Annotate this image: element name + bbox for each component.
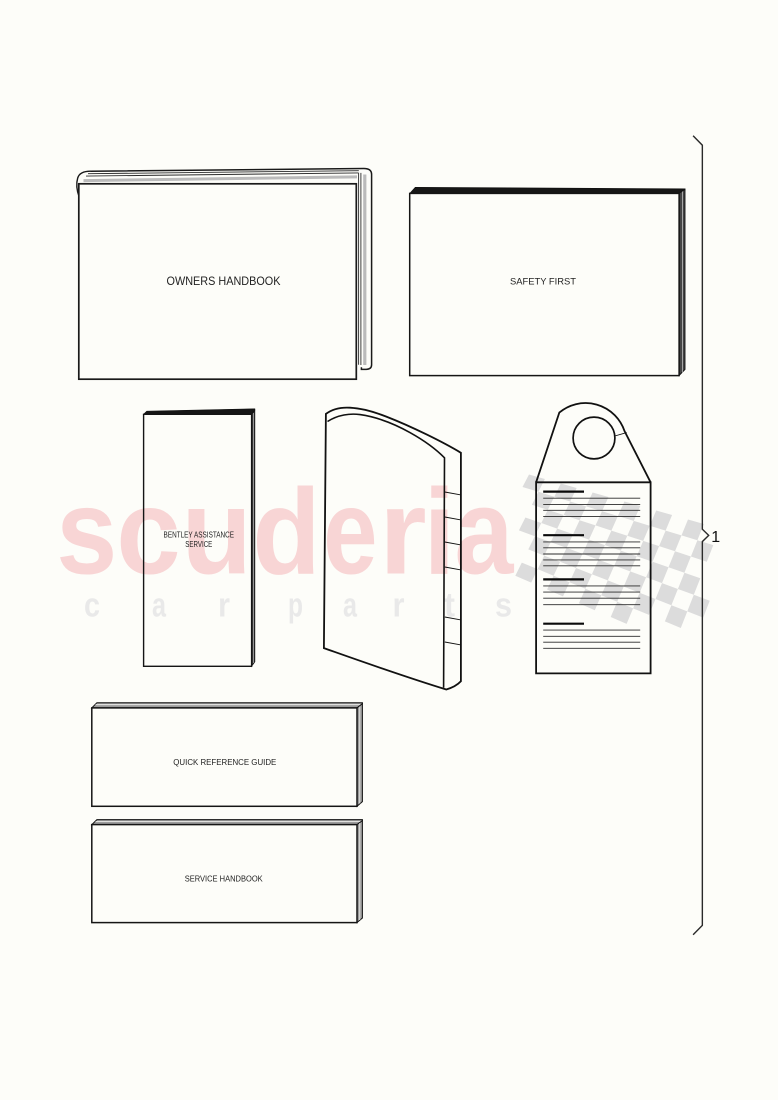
svg-text:OWNERS HANDBOOK: OWNERS HANDBOOK (167, 274, 281, 288)
svg-text:e: e (323, 464, 377, 600)
svg-text:a: a (343, 587, 358, 625)
svg-text:BENTLEY ASSISTANCE: BENTLEY ASSISTANCE (164, 531, 235, 540)
svg-text:QUICK REFERENCE GUIDE: QUICK REFERENCE GUIDE (173, 758, 276, 767)
svg-text:d: d (252, 464, 320, 600)
svg-text:SAFETY FIRST: SAFETY FIRST (510, 276, 576, 287)
svg-text:s: s (495, 587, 512, 625)
svg-text:a: a (152, 587, 167, 625)
svg-text:a: a (455, 464, 515, 600)
svg-text:1: 1 (711, 529, 720, 546)
svg-text:p: p (288, 587, 303, 625)
svg-text:s: s (56, 464, 117, 600)
svg-text:r: r (393, 587, 405, 625)
svg-text:SERVICE HANDBOOK: SERVICE HANDBOOK (185, 875, 264, 884)
svg-text:c: c (84, 587, 100, 625)
svg-text:r: r (218, 587, 230, 625)
svg-text:r: r (379, 464, 427, 600)
svg-text:i: i (423, 464, 456, 600)
svg-text:SERVICE: SERVICE (185, 540, 212, 549)
